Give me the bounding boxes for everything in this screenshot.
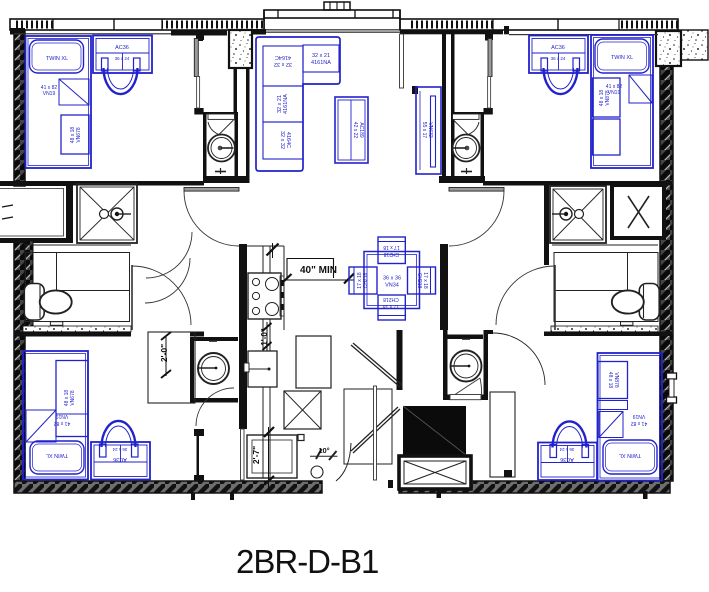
svg-text:48 x 18: 48 x 18 bbox=[607, 372, 613, 389]
svg-text:AC36: AC36 bbox=[115, 45, 129, 51]
svg-text:TWIN XL: TWIN XL bbox=[46, 452, 68, 458]
svg-text:36 x 24: 36 x 24 bbox=[559, 447, 574, 452]
svg-text:VN34: VN34 bbox=[385, 283, 399, 289]
svg-text:TWIN XL: TWIN XL bbox=[46, 56, 68, 62]
svg-text:CH218: CH218 bbox=[383, 296, 399, 302]
svg-text:AC36: AC36 bbox=[113, 456, 127, 462]
svg-text:2'-7": 2'-7" bbox=[251, 446, 261, 464]
svg-text:VN878: VN878 bbox=[605, 90, 611, 106]
svg-text:VN678: VN678 bbox=[76, 127, 82, 143]
svg-text:32 x 32: 32 x 32 bbox=[274, 61, 292, 67]
svg-text:40" MIN: 40" MIN bbox=[300, 265, 337, 276]
svg-text:TWIN XL: TWIN XL bbox=[619, 452, 641, 458]
svg-text:10°: 10° bbox=[318, 446, 329, 455]
svg-text:17 x 18: 17 x 18 bbox=[383, 303, 400, 309]
svg-text:CH218: CH218 bbox=[416, 273, 422, 289]
svg-text:42 x 22: 42 x 22 bbox=[352, 122, 358, 139]
svg-text:32 x 21: 32 x 21 bbox=[312, 53, 330, 59]
svg-text:32 x 32: 32 x 32 bbox=[279, 131, 285, 149]
svg-text:4161NA: 4161NA bbox=[283, 94, 289, 114]
svg-text:36 x 24: 36 x 24 bbox=[112, 447, 127, 452]
svg-text:36 x 24: 36 x 24 bbox=[551, 56, 566, 61]
svg-text:VN19: VN19 bbox=[43, 91, 56, 97]
svg-text:VN19: VN19 bbox=[56, 413, 69, 419]
svg-text:36 x 36: 36 x 36 bbox=[383, 276, 401, 282]
svg-text:VN19: VN19 bbox=[633, 413, 646, 419]
svg-text:41 x 82: 41 x 82 bbox=[631, 420, 648, 426]
svg-text:17 x 18: 17 x 18 bbox=[422, 272, 428, 289]
svg-text:VN678: VN678 bbox=[70, 390, 76, 406]
svg-text:1'-0": 1'-0" bbox=[260, 328, 269, 345]
svg-text:CH218: CH218 bbox=[384, 251, 400, 257]
svg-text:CH218: CH218 bbox=[363, 273, 369, 289]
svg-text:TWIN XL: TWIN XL bbox=[611, 55, 633, 61]
svg-text:VN632: VN632 bbox=[427, 122, 433, 138]
svg-text:4164C: 4164C bbox=[285, 132, 291, 148]
svg-text:17 x 18: 17 x 18 bbox=[383, 244, 400, 250]
svg-text:AC189: AC189 bbox=[358, 122, 364, 138]
svg-text:2BR-D-B1: 2BR-D-B1 bbox=[236, 543, 378, 580]
svg-text:AC36: AC36 bbox=[560, 456, 574, 462]
svg-text:4164C: 4164C bbox=[275, 54, 291, 60]
svg-text:2'-0": 2'-0" bbox=[159, 344, 169, 362]
svg-text:41 x 82: 41 x 82 bbox=[54, 420, 71, 426]
svg-text:4161NA: 4161NA bbox=[311, 60, 331, 66]
svg-text:55 x 17: 55 x 17 bbox=[421, 122, 427, 139]
svg-text:VN878: VN878 bbox=[613, 372, 619, 388]
svg-text:AC36: AC36 bbox=[551, 45, 565, 51]
svg-text:36 x 24: 36 x 24 bbox=[115, 56, 130, 61]
